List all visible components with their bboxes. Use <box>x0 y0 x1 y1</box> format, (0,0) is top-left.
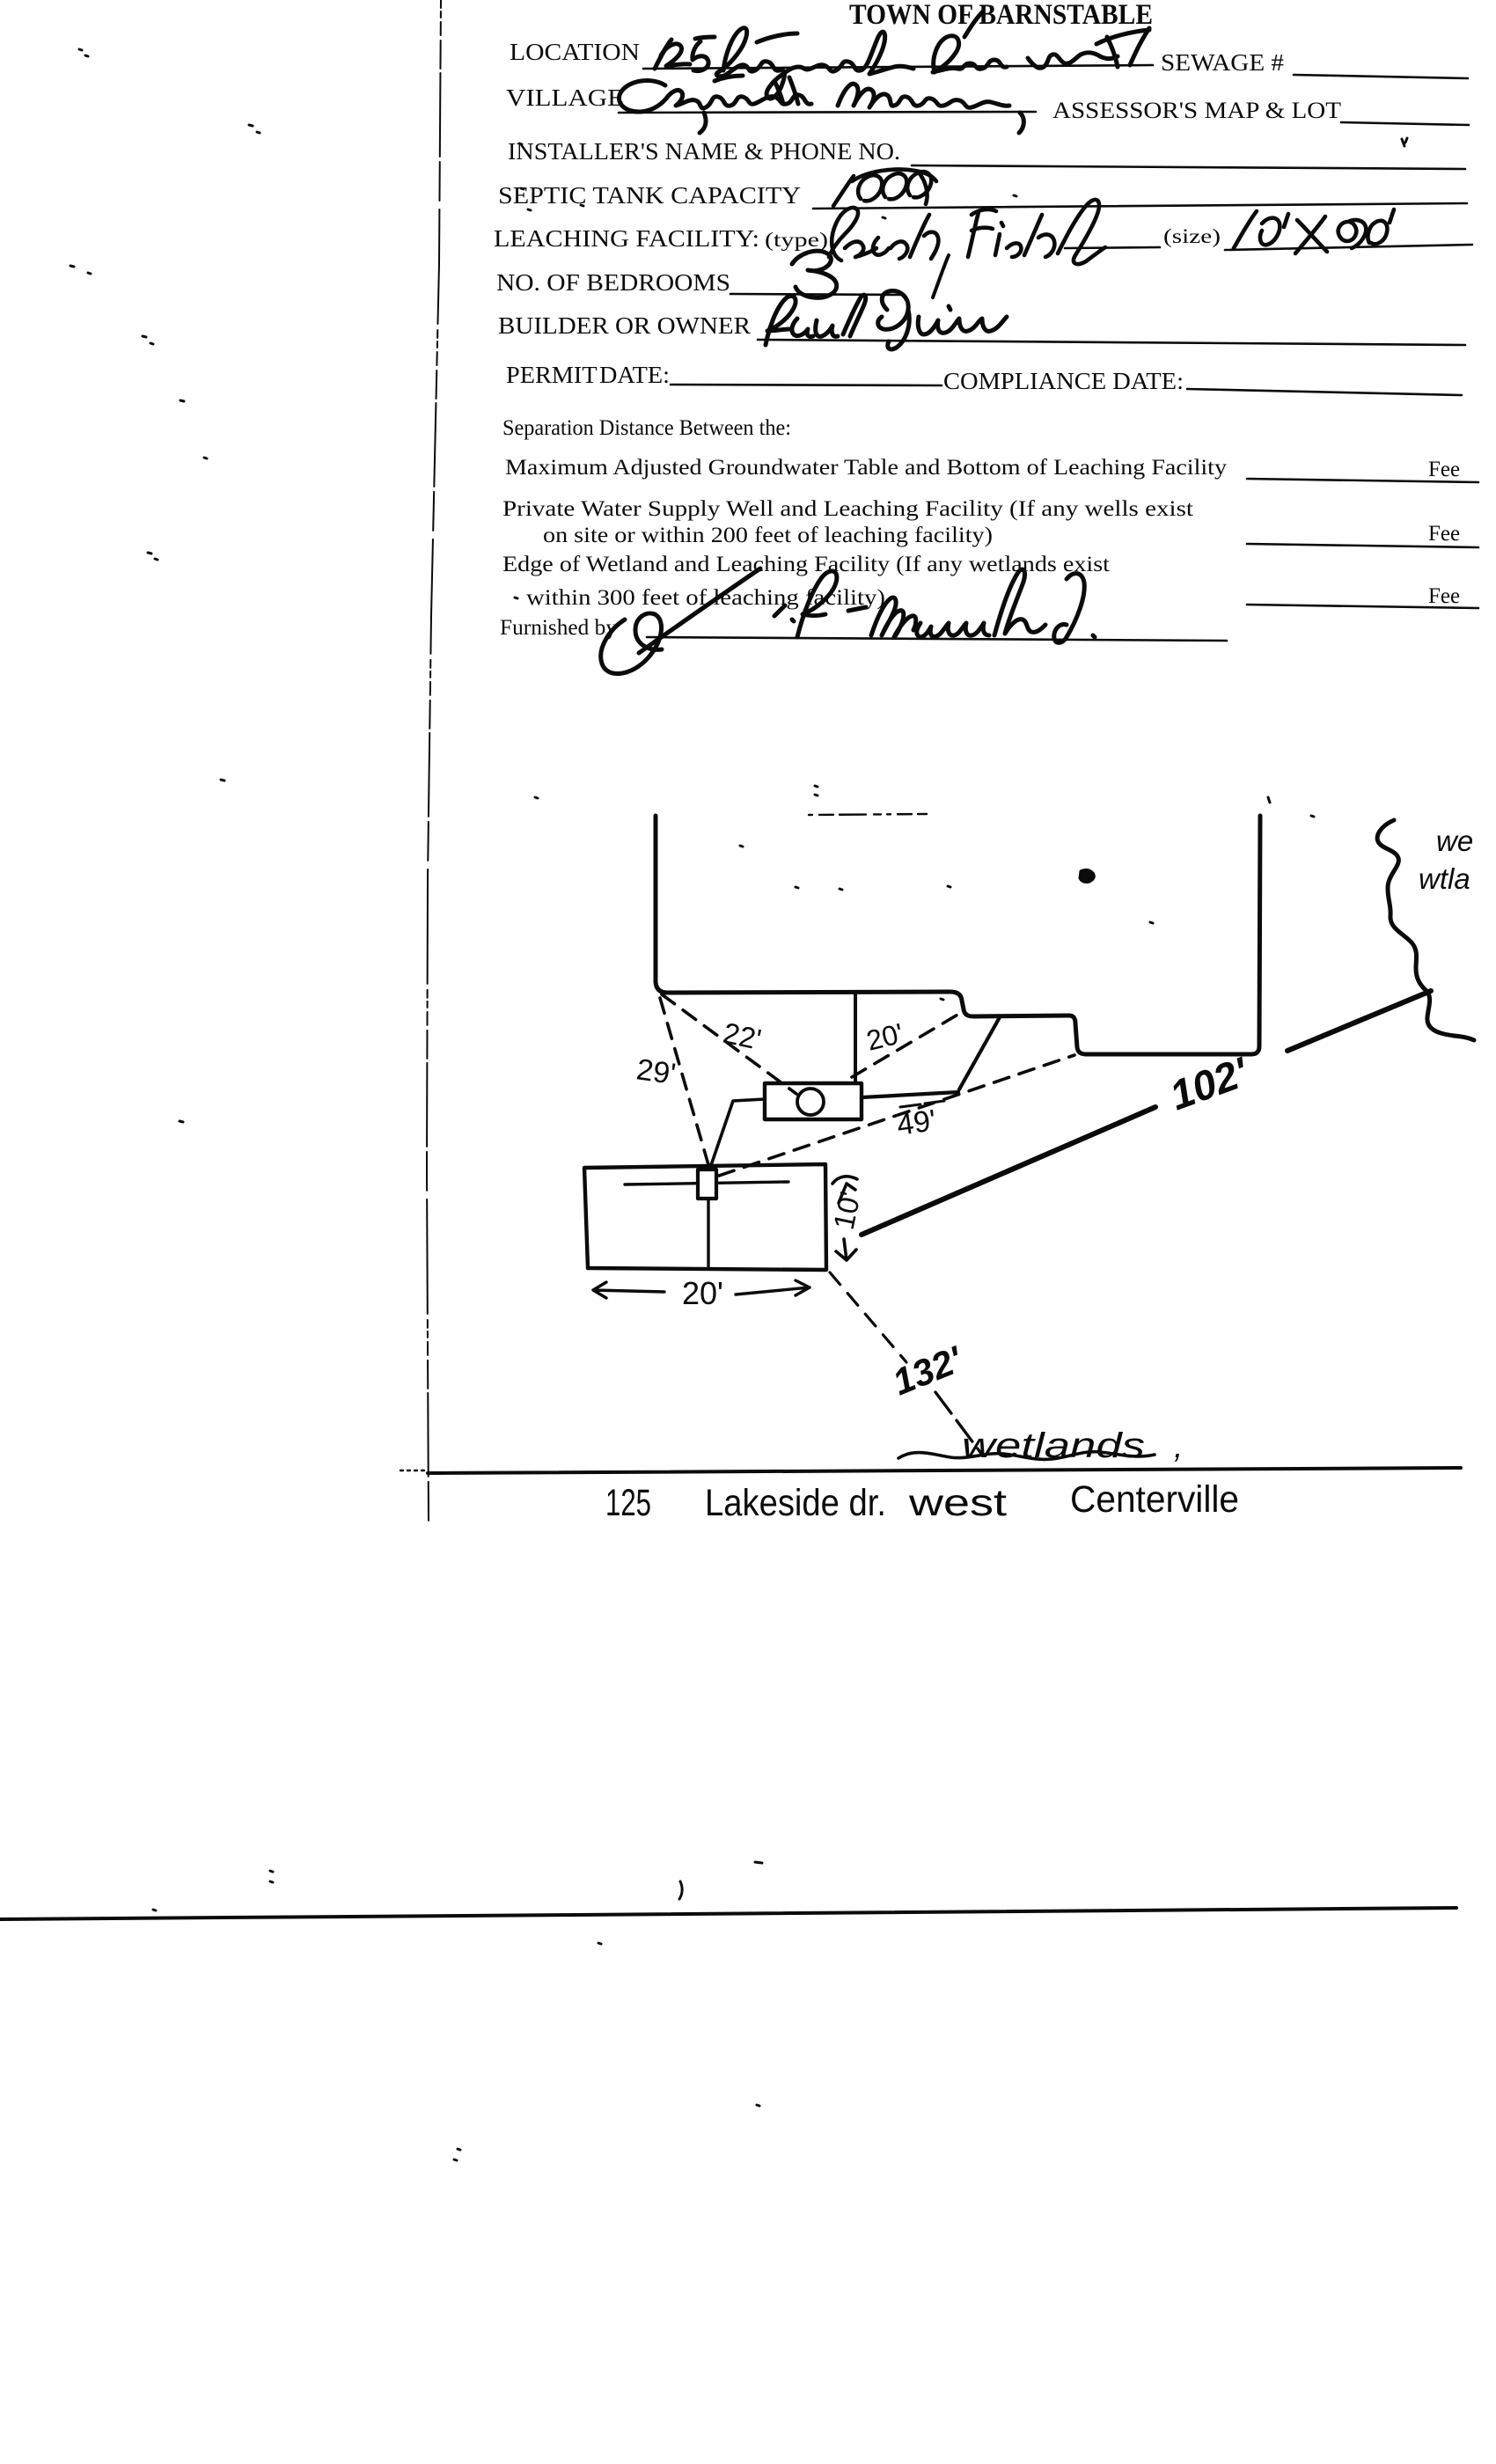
svg-text:Fee: Fee <box>1428 458 1460 481</box>
svg-text:20': 20' <box>682 1275 723 1311</box>
svg-text:COMPLIANCE DATE:: COMPLIANCE DATE: <box>943 368 1184 394</box>
svg-text:Maximum Adjusted Groundwater T: Maximum Adjusted Groundwater Table and B… <box>505 456 1228 480</box>
svg-text:Lakeside dr.: Lakeside dr. <box>705 1482 886 1524</box>
svg-text:SEPTIC TANK CAPACITY: SEPTIC TANK CAPACITY <box>498 182 801 209</box>
svg-text:29': 29' <box>634 1052 678 1091</box>
svg-text:(type): (type) <box>765 229 828 251</box>
svg-text:INSTALLER'S NAME & PHONE NO.: INSTALLER'S NAME & PHONE NO. <box>508 138 900 165</box>
svg-text:Separation Distance Between th: Separation Distance Between the: <box>502 416 791 440</box>
svg-text:on site or within 200 feet of: on site or within 200 feet of leaching f… <box>543 524 993 547</box>
svg-text:49': 49' <box>895 1104 938 1142</box>
svg-text:west: west <box>908 1482 1007 1524</box>
svg-text:TOWN OF BARNSTABLE: TOWN OF BARNSTABLE <box>849 0 1153 31</box>
svg-text:,: , <box>1174 1428 1183 1464</box>
svg-text:LOCATION: LOCATION <box>510 39 640 65</box>
svg-text:125: 125 <box>605 1482 651 1524</box>
svg-text:Centerville: Centerville <box>1070 1478 1239 1521</box>
svg-text:SEWAGE #: SEWAGE # <box>1161 49 1285 76</box>
svg-text:10': 10' <box>827 1189 867 1233</box>
svg-text:wtla: wtla <box>1419 862 1470 895</box>
svg-text:132': 132' <box>887 1338 970 1403</box>
svg-text:Furnished by: Furnished by <box>500 616 618 640</box>
svg-text:20': 20' <box>863 1017 906 1057</box>
svg-text:LEACHING FACILITY:: LEACHING FACILITY: <box>494 225 759 252</box>
svg-text:PERMIT DATE:: PERMIT DATE: <box>506 362 670 388</box>
svg-text:(size): (size) <box>1163 225 1221 247</box>
svg-text:VILLAGE: VILLAGE <box>506 84 624 111</box>
svg-text:NO. OF BEDROOMS: NO. OF BEDROOMS <box>496 269 730 296</box>
svg-text:we: we <box>1436 825 1473 857</box>
svg-text:BUILDER OR OWNER: BUILDER OR OWNER <box>498 312 751 339</box>
svg-text:102': 102' <box>1163 1047 1255 1118</box>
svg-text:Fee: Fee <box>1428 584 1460 608</box>
svg-text:Fee: Fee <box>1428 522 1460 546</box>
svg-text:ASSESSOR'S MAP & LOT: ASSESSOR'S MAP & LOT <box>1052 98 1341 123</box>
svg-text:22': 22' <box>721 1016 765 1056</box>
svg-text:Private Water Supply Well and: Private Water Supply Well and Leaching F… <box>502 497 1193 521</box>
